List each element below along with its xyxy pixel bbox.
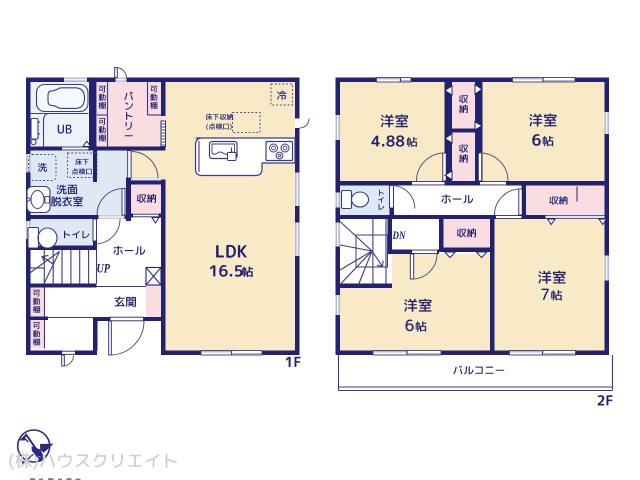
svg-text:DN: DN [392, 228, 407, 242]
svg-text:UP: UP [97, 261, 111, 276]
